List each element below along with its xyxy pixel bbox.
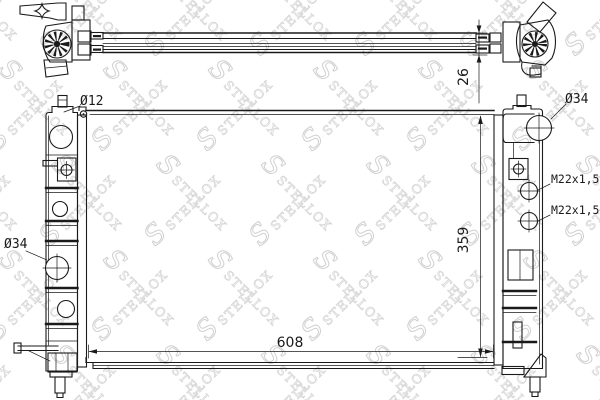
radiator-technical-drawing: SSTELLOXSSTELLOXSSTELLOXSSTELLOXSSTELLOX… <box>0 0 600 400</box>
mounting-stud-right <box>513 95 531 109</box>
dim-core-thickness-text: 26 <box>456 68 472 86</box>
label-left-hose-port: Ø34 <box>4 237 28 252</box>
label-mounting-stud: Ø12 <box>80 94 103 109</box>
drain-boss <box>58 301 75 318</box>
watermark-text: SSTELLOX <box>570 338 600 400</box>
watermark-text: SSTELLOX <box>558 0 600 62</box>
watermark-text: SSTELLOX <box>0 353 17 400</box>
label-thread-upper: M22x1,5 <box>551 172 599 186</box>
dimension-core-width: 608 <box>89 335 494 358</box>
dim-core-height-text: 359 <box>456 227 472 254</box>
label-right-hose-port: Ø34 <box>565 92 589 107</box>
label-thread-lower: M22x1,5 <box>551 203 599 217</box>
mounting-pin-left <box>55 377 65 393</box>
dim-core-width-text: 608 <box>277 335 304 351</box>
watermark-text: SSTELLOX <box>0 148 29 237</box>
watermark-text: SSTELLOX <box>0 0 29 47</box>
callout-labels: Ø12 Ø34 Ø34 M22x1,5 M22x1,5 <box>4 92 599 260</box>
